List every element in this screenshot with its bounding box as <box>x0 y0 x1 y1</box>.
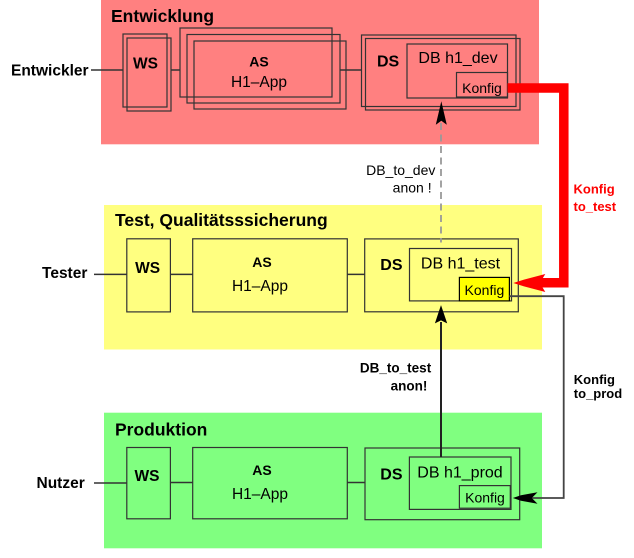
svg-text:DB h1_dev: DB h1_dev <box>418 50 497 67</box>
svg-text:Test, Qualitätsssicherung: Test, Qualitätsssicherung <box>115 210 328 230</box>
svg-text:to_test: to_test <box>574 199 617 214</box>
svg-text:Entwicklung: Entwicklung <box>111 6 214 26</box>
svg-text:Konfig: Konfig <box>574 181 615 196</box>
svg-text:DS: DS <box>380 257 403 274</box>
svg-text:WS: WS <box>135 468 160 485</box>
svg-text:Nutzer: Nutzer <box>37 475 85 492</box>
svg-text:H1–App: H1–App <box>232 278 288 295</box>
svg-text:anon !: anon ! <box>393 179 432 195</box>
svg-text:Produktion: Produktion <box>115 419 207 439</box>
svg-text:anon!: anon! <box>391 378 428 393</box>
svg-text:DB h1_prod: DB h1_prod <box>417 464 502 481</box>
svg-text:AS: AS <box>252 254 271 270</box>
svg-text:Tester: Tester <box>42 265 87 282</box>
svg-text:DS: DS <box>380 467 403 484</box>
svg-text:AS: AS <box>252 462 271 478</box>
svg-text:DS: DS <box>377 53 400 70</box>
svg-text:H1–App: H1–App <box>231 74 287 91</box>
svg-text:Konfig: Konfig <box>574 372 615 387</box>
svg-text:WS: WS <box>135 260 160 277</box>
svg-text:WS: WS <box>133 56 158 73</box>
svg-text:Konfig: Konfig <box>465 490 505 506</box>
svg-text:to_prod: to_prod <box>574 386 622 401</box>
svg-text:Konfig: Konfig <box>465 282 505 298</box>
svg-text:Konfig: Konfig <box>462 80 502 96</box>
svg-text:DB_to_dev: DB_to_dev <box>366 162 435 178</box>
svg-text:Entwickler: Entwickler <box>11 63 89 80</box>
svg-text:DB h1_test: DB h1_test <box>421 255 501 272</box>
svg-text:AS: AS <box>249 54 268 70</box>
svg-text:H1–App: H1–App <box>232 486 288 503</box>
svg-text:DB_to_test: DB_to_test <box>360 361 432 376</box>
